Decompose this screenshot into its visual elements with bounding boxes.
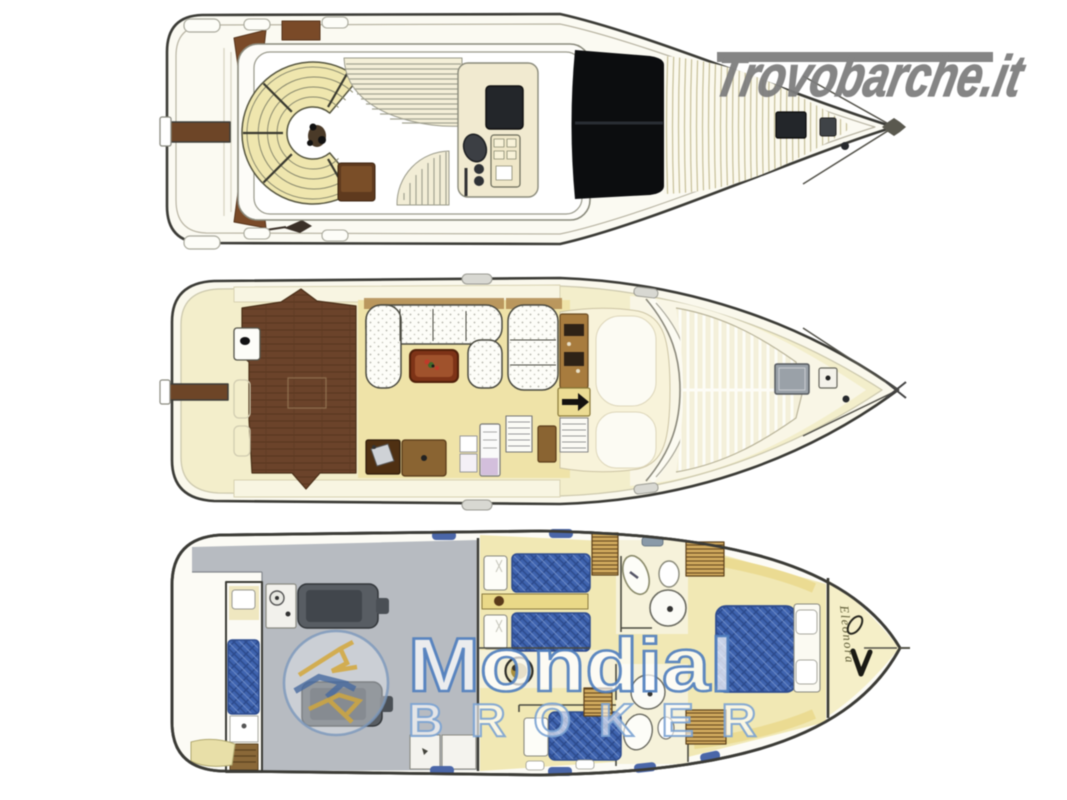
svg-text:BROKER: BROKER (408, 694, 784, 746)
svg-text:Trovobarche.it: Trovobarche.it (709, 45, 1031, 109)
